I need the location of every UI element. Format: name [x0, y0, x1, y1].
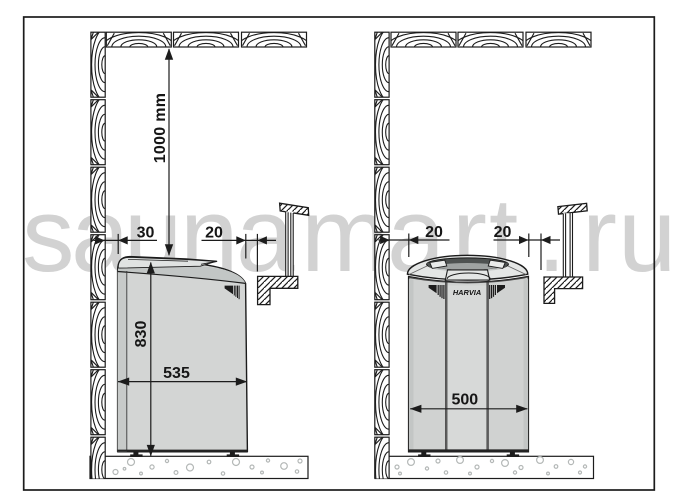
svg-text:500: 500 — [451, 392, 478, 409]
svg-text:20: 20 — [494, 224, 512, 241]
svg-text:1000 mm: 1000 mm — [152, 93, 169, 164]
svg-text:830: 830 — [133, 321, 150, 348]
svg-text:HARVIA: HARVIA — [453, 288, 481, 297]
svg-text:30: 30 — [137, 224, 155, 241]
svg-text:20: 20 — [205, 224, 223, 241]
svg-text:20: 20 — [425, 224, 443, 241]
svg-text:535: 535 — [163, 365, 190, 382]
